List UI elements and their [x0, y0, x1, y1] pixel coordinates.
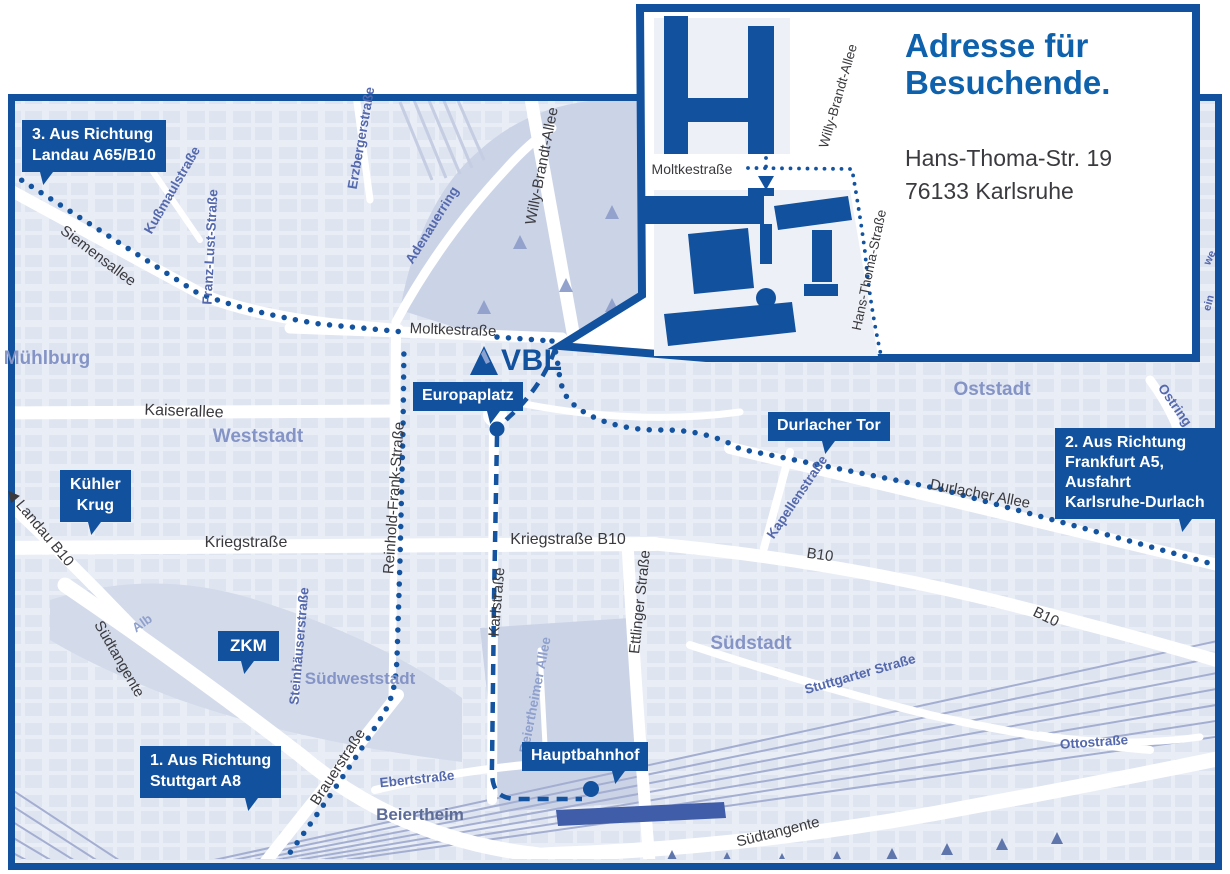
badge-europaplatz: Europaplatz [413, 382, 523, 411]
inset-address-line1: Hans-Thoma-Str. 19 [905, 142, 1112, 175]
badge-route-3: 3. Aus Richtung Landau A65/B10 [22, 120, 166, 172]
badge-hauptbahnhof: Hauptbahnhof [522, 742, 648, 771]
vbl-logo-text: VBL [501, 344, 563, 378]
badge-zkm: ZKM [218, 631, 279, 661]
inset-address: Hans-Thoma-Str. 19 76133 Karlsruhe [905, 142, 1112, 207]
badge-route-1: 1. Aus Richtung Stuttgart A8 [140, 746, 281, 798]
badge-durlacher-tor: Durlacher Tor [768, 412, 890, 441]
badge-route-2: 2. Aus Richtung Frankfurt A5, Ausfahrt K… [1055, 428, 1215, 519]
hauptbahnhof-dot [583, 781, 599, 797]
inset-address-line2: 76133 Karlsruhe [905, 175, 1112, 208]
badge-kuehler-krug: Kühler Krug [60, 470, 131, 522]
karlsruhe-direction-map: Adresse für Besuchende. Hans-Thoma-Str. … [0, 0, 1230, 874]
inset-title: Adresse für Besuchende. [905, 28, 1185, 102]
